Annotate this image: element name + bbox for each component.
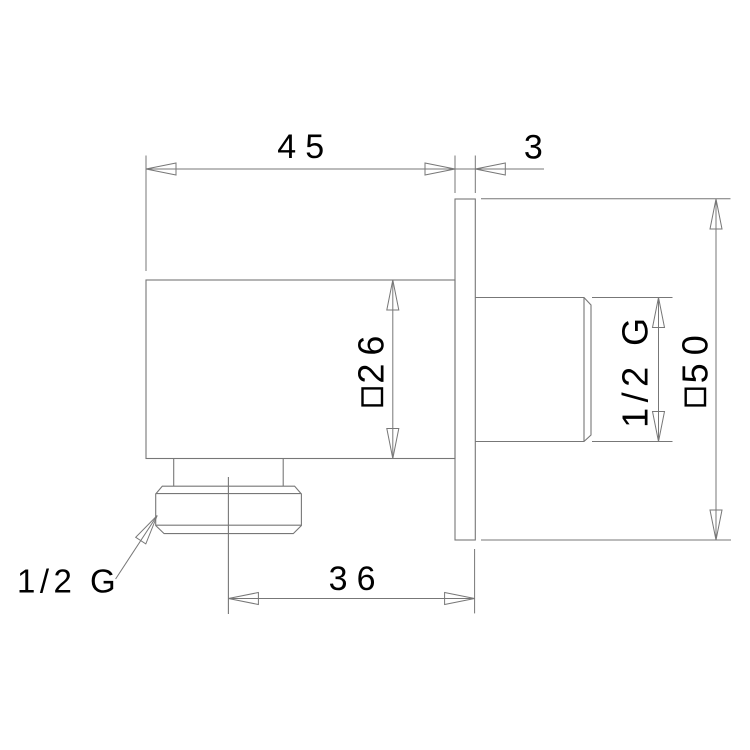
svg-text:26: 26 <box>351 328 392 384</box>
svg-text:45: 45 <box>277 128 333 166</box>
svg-text:36: 36 <box>329 560 385 598</box>
svg-text:1/2 G: 1/2 G <box>17 562 120 599</box>
svg-text:3: 3 <box>524 128 543 166</box>
svg-text:1/2 G: 1/2 G <box>615 312 656 428</box>
svg-text:50: 50 <box>674 327 715 383</box>
